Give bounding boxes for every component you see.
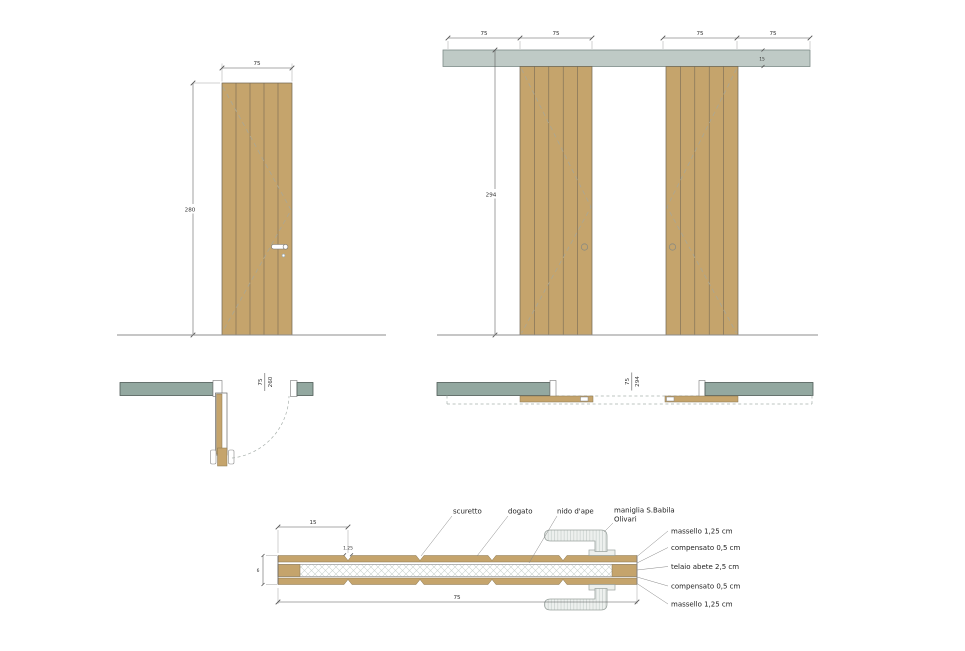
single-door-plan: 75 260	[120, 373, 313, 466]
dimension-thickness: 6	[257, 554, 277, 586]
sliding-panel-left	[520, 67, 592, 336]
label-scuretto: scuretto	[453, 508, 482, 516]
telaio-block-left	[278, 565, 300, 577]
dim-text-height-single: 280	[185, 208, 196, 214]
label-dogato: dogato	[508, 508, 533, 516]
dimension-height-double: 294	[483, 48, 501, 338]
dimension-height-single: 280	[181, 81, 220, 338]
honeycomb-core	[278, 565, 637, 577]
sliding-panel-right	[666, 67, 738, 336]
wall-segment-left	[437, 383, 550, 396]
handle-grip-top	[545, 530, 608, 552]
dimension-chain-left: 75 75	[446, 31, 595, 49]
dim-text-panel-2: 75	[552, 31, 560, 37]
flush-pull-plan	[667, 397, 675, 401]
label-maniglia-line1: maniglia S.Babila	[614, 507, 675, 515]
label-telaio: telaio abete 2,5 cm	[671, 563, 739, 571]
handle-grip-bottom	[545, 589, 608, 611]
door-jamb-left	[550, 381, 556, 397]
label-nido-dape: nido d'ape	[557, 508, 594, 516]
dim-text-plank-width: 15	[309, 520, 317, 526]
dim-text-opening-height-single: 260	[268, 376, 274, 387]
dimension-opening-double: 75 294	[625, 373, 641, 391]
keyhole-icon	[282, 254, 285, 257]
door-jamb-right	[699, 381, 705, 397]
massello-strip-top	[278, 556, 637, 563]
dim-text-panel-3: 75	[696, 31, 704, 37]
section-layer-labels: massello 1,25 cm compensato 0,5 cm telai…	[637, 528, 741, 609]
sliding-track	[443, 50, 810, 67]
door-leaf-plan	[211, 393, 235, 466]
dim-text-groove: 1.25	[343, 546, 353, 552]
dimension-groove: 1.25	[343, 546, 353, 557]
door-swing-arc	[232, 396, 289, 458]
dim-text-thickness: 6	[257, 568, 260, 574]
dimension-opening-single: 75 260	[258, 373, 274, 391]
label-compensato-top: compensato 0,5 cm	[671, 544, 741, 552]
door-panel-single	[222, 83, 292, 335]
flush-pull-plan	[581, 397, 589, 401]
wall-segment-right	[705, 383, 813, 396]
dimension-plank-width: 15	[276, 520, 351, 553]
dim-text-opening-width-single: 75	[258, 378, 264, 386]
technical-drawing-sheet: 75 280	[0, 0, 965, 651]
massello-strip-bottom	[278, 578, 637, 585]
single-door-elevation: 75 280	[117, 61, 386, 337]
dim-text-panel-1: 75	[480, 31, 488, 37]
dim-text-opening-width-double: 75	[625, 378, 631, 386]
wall-segment-right	[297, 383, 313, 396]
dimension-width-single: 75	[220, 61, 295, 82]
dim-text-opening-height-double: 294	[635, 376, 641, 387]
sliding-leaf-right-plan	[665, 396, 738, 402]
dim-text-height-double: 294	[486, 193, 497, 199]
sliding-leaf-left-plan	[520, 396, 593, 402]
dim-text-track-height: 15	[759, 57, 765, 63]
double-door-elevation: 75 75 75 75 15	[437, 31, 818, 337]
telaio-block-right	[612, 565, 637, 577]
pocket-track-outline	[447, 396, 812, 405]
door-section-detail: 15 1.25 6	[257, 507, 741, 611]
label-maniglia-line2: Olivari	[614, 516, 637, 524]
dim-text-panel-4: 75	[769, 31, 777, 37]
label-compensato-bottom: compensato 0,5 cm	[671, 583, 741, 591]
section-body	[278, 556, 637, 585]
double-door-plan: 75 294	[437, 373, 813, 405]
wall-segment-left	[120, 383, 213, 396]
dimension-chain-right: 75 75	[661, 31, 813, 49]
door-jamb-right	[291, 381, 298, 397]
dim-text-width-single: 75	[253, 61, 261, 67]
dim-text-section-width: 75	[453, 595, 461, 601]
label-massello-bottom: massello 1,25 cm	[671, 601, 733, 609]
label-massello-top: massello 1,25 cm	[671, 528, 733, 536]
door-technical-drawing: 75 280	[0, 0, 965, 651]
